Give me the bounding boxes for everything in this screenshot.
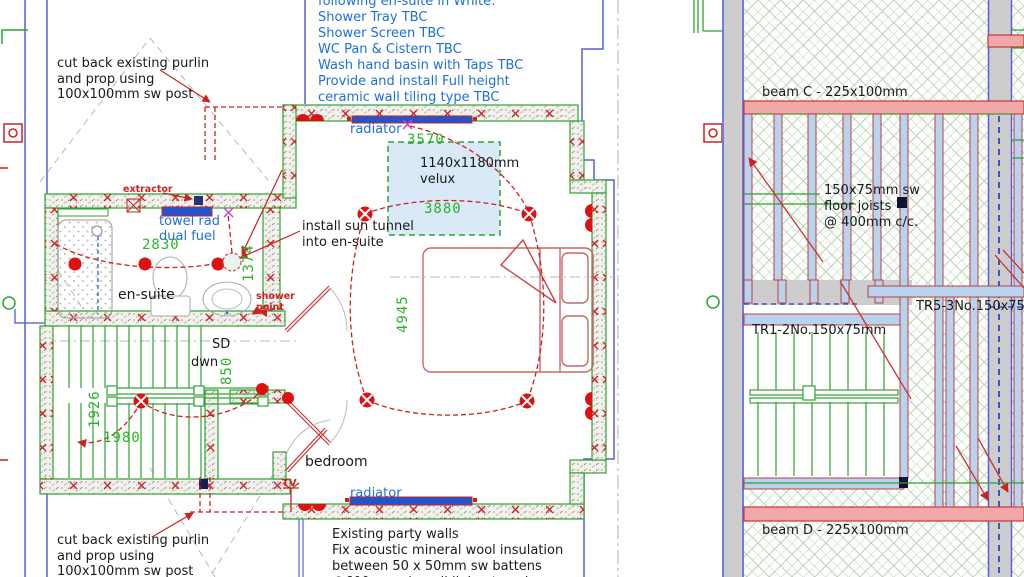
sun-tunnel-note: install sun tunnel into en-suite xyxy=(302,219,414,250)
wall-ensuite-left xyxy=(45,208,58,311)
velux-note: 1140x1180mm velux xyxy=(420,156,519,187)
stairs-down-label: dwn xyxy=(191,355,218,371)
wall-party-right-2 xyxy=(592,193,606,460)
room-label-ensuite: en-suite xyxy=(118,288,175,304)
wall-party-right-1 xyxy=(570,121,584,180)
dim-4945: 4945 xyxy=(396,295,412,333)
shower-head xyxy=(92,226,102,236)
beam-c xyxy=(744,101,1024,114)
beam-d-label: beam D - 225x100mm xyxy=(762,523,909,539)
beam-c-label: beam C - 225x100mm xyxy=(762,85,908,101)
ensuite-spec-note: following en-suite in White: Shower Tray… xyxy=(318,0,523,106)
party-wall-note: Existing party walls Fix acoustic minera… xyxy=(332,527,563,577)
beam-d xyxy=(744,507,1024,521)
dim-1980: 1980 xyxy=(103,431,141,447)
tr5-label: TR5-3No.150x75mm xyxy=(916,299,1024,315)
shower-point-label: shower point xyxy=(256,291,295,313)
tr5-bar xyxy=(868,286,1024,297)
wall-stair-bottom xyxy=(40,479,290,494)
wall-ensuite-top xyxy=(45,194,296,208)
shower-screen xyxy=(58,209,108,216)
sun-tunnel-target xyxy=(223,253,241,271)
wall-stair-right xyxy=(205,390,218,479)
wall-bedroom-left xyxy=(283,105,296,198)
dim-1374: 1374 xyxy=(242,244,258,282)
tv-label: TV xyxy=(282,476,297,492)
wall-jog-upper xyxy=(570,180,606,193)
doors xyxy=(285,286,347,472)
wall-party-right-3 xyxy=(570,473,584,504)
radiator-bottom-label: radiator xyxy=(350,486,402,502)
floor-joists-note: 150x75mm sw floor joists @ 400mm c/c. xyxy=(824,183,920,231)
dim-850: 850 xyxy=(220,357,236,385)
dim-1926: 1926 xyxy=(88,390,104,428)
shower-tray xyxy=(58,220,112,318)
towel-rad-label: towel rad xyxy=(159,214,220,230)
purlin-note-bottom: cut back existing purlin and prop using … xyxy=(57,533,209,577)
dim-3880: 3880 xyxy=(424,202,462,218)
extractor-label: extractor xyxy=(123,184,173,195)
dim-3570: 3570 xyxy=(407,133,445,149)
tr1-label: TR1-2No.150x75mm xyxy=(752,323,886,339)
bed xyxy=(423,240,593,372)
dim-2830: 2830 xyxy=(142,238,180,254)
cad-drawing-canvas[interactable]: following en-suite in White: Shower Tray… xyxy=(0,0,1024,577)
purlin-note-top: cut back existing purlin and prop using … xyxy=(57,56,209,103)
wall-bedroom-bottom xyxy=(283,504,584,519)
room-label-bedroom: bedroom xyxy=(305,455,368,471)
wall-jog-lower xyxy=(570,460,606,473)
radiator-top-label: radiator xyxy=(350,122,402,138)
wall-stub-vertical xyxy=(273,452,286,479)
wall-stair-left xyxy=(40,326,53,479)
smoke-detector-label: SD xyxy=(212,337,230,353)
